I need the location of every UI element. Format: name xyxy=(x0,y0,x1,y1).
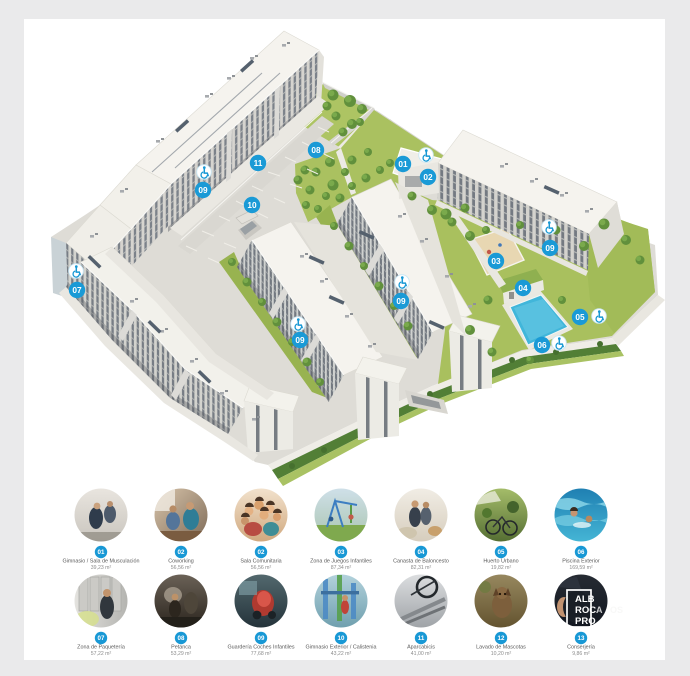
svg-text:01: 01 xyxy=(398,159,408,169)
svg-text:08: 08 xyxy=(311,145,321,155)
svg-text:Zona de Juegos Infantiles: Zona de Juegos Infantiles xyxy=(310,559,372,565)
svg-text:Gimnasio / Sala de Musculación: Gimnasio / Sala de Musculación xyxy=(62,559,139,565)
svg-text:10: 10 xyxy=(247,200,257,210)
svg-text:Zona de Paquetería: Zona de Paquetería xyxy=(77,645,125,651)
svg-text:09: 09 xyxy=(295,335,305,345)
svg-text:08: 08 xyxy=(178,635,185,642)
svg-text:41,00 m²: 41,00 m² xyxy=(411,651,432,657)
svg-text:Conserjería: Conserjería xyxy=(567,645,595,651)
svg-text:04: 04 xyxy=(518,283,528,293)
svg-text:ROC: ROC xyxy=(575,605,596,616)
svg-text:11: 11 xyxy=(418,635,425,642)
svg-text:Canasta de Baloncesto: Canasta de Baloncesto xyxy=(393,559,449,565)
svg-text:57,22 m²: 57,22 m² xyxy=(91,651,112,657)
svg-text:11: 11 xyxy=(254,158,263,168)
svg-text:Huerto Urbano: Huerto Urbano xyxy=(483,559,518,565)
svg-text:9,86 m²: 9,86 m² xyxy=(572,651,590,657)
svg-text:Petanca: Petanca xyxy=(171,645,191,651)
svg-text:02: 02 xyxy=(258,549,265,556)
svg-text:53,29 m²: 53,29 m² xyxy=(171,651,192,657)
svg-text:07: 07 xyxy=(98,635,105,642)
svg-text:82,31 m²: 82,31 m² xyxy=(411,565,432,571)
svg-text:13: 13 xyxy=(578,635,585,642)
svg-text:Piscina Exterior: Piscina Exterior xyxy=(562,559,600,565)
svg-text:03: 03 xyxy=(338,549,345,556)
svg-text:06: 06 xyxy=(578,549,585,556)
svg-text:10,20 m²: 10,20 m² xyxy=(491,651,512,657)
svg-text:02: 02 xyxy=(178,549,185,556)
svg-text:Aparcabicis: Aparcabicis xyxy=(407,645,435,651)
svg-text:56,56 m²: 56,56 m² xyxy=(251,565,272,571)
svg-text:05: 05 xyxy=(498,549,505,556)
svg-text:39,23 m²: 39,23 m² xyxy=(91,565,112,571)
svg-text:03: 03 xyxy=(491,256,501,266)
svg-text:02: 02 xyxy=(423,172,433,182)
svg-text:ALB: ALB xyxy=(575,594,595,605)
svg-text:04: 04 xyxy=(418,549,425,556)
svg-text:09: 09 xyxy=(396,296,406,306)
svg-text:Lavado de Mascotas: Lavado de Mascotas xyxy=(476,645,526,651)
svg-text:10: 10 xyxy=(338,635,345,642)
svg-text:09: 09 xyxy=(258,635,265,642)
svg-text:43,22 m²: 43,22 m² xyxy=(331,651,352,657)
svg-text:PRO: PRO xyxy=(575,616,596,627)
svg-text:19,82 m²: 19,82 m² xyxy=(491,565,512,571)
svg-text:09: 09 xyxy=(545,243,555,253)
svg-text:87,34 m²: 87,34 m² xyxy=(331,565,352,571)
svg-text:A OS: A OS xyxy=(596,605,623,615)
svg-text:56,56 m²: 56,56 m² xyxy=(171,565,192,571)
svg-text:Gimnasio Exterior / Calistenia: Gimnasio Exterior / Calistenia xyxy=(305,645,376,651)
svg-text:06: 06 xyxy=(537,340,547,350)
svg-text:01: 01 xyxy=(98,549,105,556)
svg-text:Coworking: Coworking xyxy=(168,559,193,565)
svg-text:05: 05 xyxy=(575,312,585,322)
svg-text:Guardería Coches Infantiles: Guardería Coches Infantiles xyxy=(227,645,294,651)
svg-text:07: 07 xyxy=(72,285,82,295)
svg-text:169,59 m²: 169,59 m² xyxy=(569,565,593,571)
svg-text:12: 12 xyxy=(498,635,505,642)
svg-text:09: 09 xyxy=(198,185,208,195)
svg-text:77,68 m²: 77,68 m² xyxy=(251,651,272,657)
svg-text:Sala Comunitaria: Sala Comunitaria xyxy=(240,559,281,565)
